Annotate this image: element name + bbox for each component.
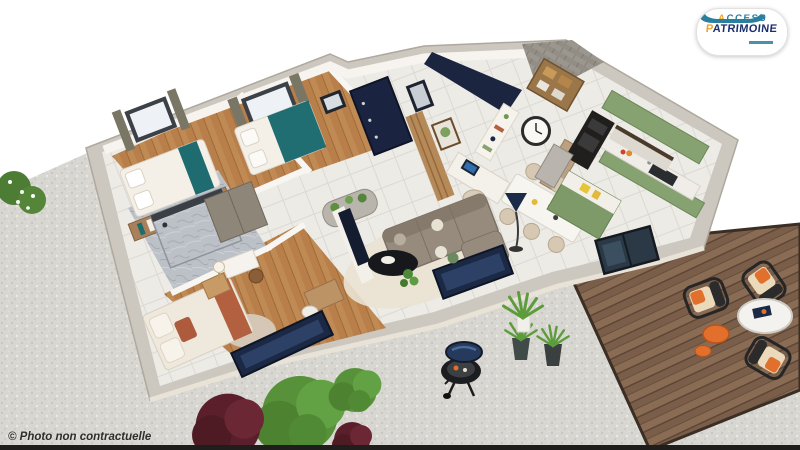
- logo-word-patrimoine: PATRIMOINE: [696, 24, 787, 36]
- bottom-edge-strip: [0, 445, 800, 450]
- wall-clock: [523, 118, 550, 145]
- pillow-white: [435, 246, 447, 258]
- logo-underline: [749, 41, 773, 44]
- scene-canvas: [0, 0, 800, 450]
- side-table-orange: [703, 325, 729, 343]
- copyright-watermark: © Photo non contractuelle: [8, 431, 151, 443]
- laundry-basket: [249, 269, 263, 283]
- access-patrimoine-logo: ACCESS PATRIMOINE: [696, 8, 788, 56]
- hand-icon: [697, 9, 775, 23]
- side-table-small: [695, 346, 711, 357]
- floorplan-render: ACCESS PATRIMOINE © Photo non contractue…: [0, 0, 800, 450]
- pillow-green: [448, 253, 459, 264]
- table-decor: [381, 256, 395, 264]
